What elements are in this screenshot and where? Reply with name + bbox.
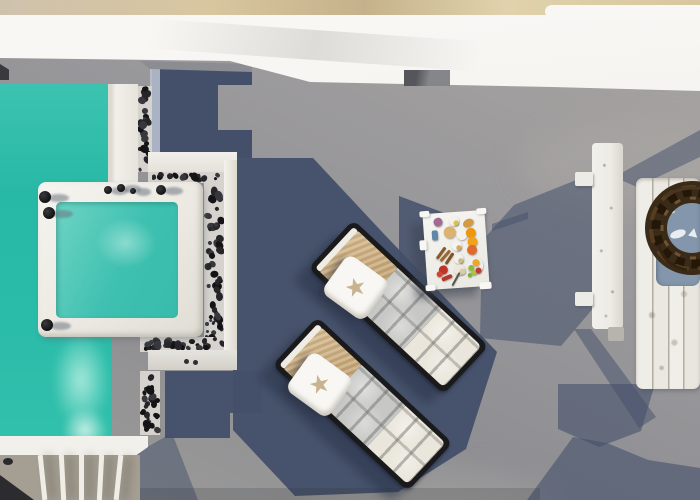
pebble <box>152 174 156 179</box>
table-corner-tab <box>479 282 491 290</box>
pebble <box>204 212 214 220</box>
food-item <box>467 245 478 256</box>
pool-right-coping <box>108 84 138 184</box>
food-item <box>459 268 465 274</box>
jacuzzi-water-highlight <box>96 218 156 268</box>
walkway-right-bar <box>224 160 237 362</box>
food-item <box>475 267 481 273</box>
pebble-border-lower <box>140 371 160 435</box>
white-bench <box>592 143 623 329</box>
ledge-drain-dot <box>184 359 189 364</box>
pebble <box>207 227 213 233</box>
food-item <box>433 217 443 227</box>
twig-wreath <box>635 166 700 296</box>
stairs-drain <box>3 458 13 465</box>
jacuzzi-knob <box>104 186 112 194</box>
step-riser <box>79 455 84 500</box>
pebble <box>147 373 156 382</box>
pebble <box>189 339 196 344</box>
knob-shadow <box>136 188 151 196</box>
bench-support <box>575 172 593 186</box>
pebble <box>146 416 150 421</box>
knob-shadow <box>52 210 73 218</box>
food-item <box>443 226 456 239</box>
knob-shadow <box>48 194 69 202</box>
starfish-icon <box>306 371 334 399</box>
jacuzzi-knob <box>41 319 53 331</box>
pebble <box>207 283 211 287</box>
pebble <box>205 322 209 326</box>
bench-foot <box>608 327 624 341</box>
pebble <box>138 168 142 173</box>
pebble <box>212 337 217 342</box>
jacuzzi-knob <box>130 188 136 194</box>
parapet-left-nick <box>0 64 9 80</box>
table-corner-tab <box>425 285 435 292</box>
pebble <box>214 206 219 211</box>
food-item <box>468 273 472 277</box>
pebble <box>142 107 149 113</box>
knob-shadow <box>164 187 183 195</box>
table-corner-tab <box>476 208 486 215</box>
breakfast-table <box>422 210 489 290</box>
knob-shadow <box>50 322 71 330</box>
jacuzzi-knob <box>43 207 55 219</box>
food-item <box>441 274 453 282</box>
pebble <box>210 270 219 277</box>
pebble <box>217 323 223 330</box>
table-side-tab <box>419 240 427 250</box>
pool-terrace-photo <box>0 0 700 500</box>
upper-roof-white-band <box>545 5 700 18</box>
pebble <box>153 425 162 433</box>
food-item <box>458 258 463 263</box>
jacuzzi-knob <box>117 184 125 192</box>
food-item <box>456 245 461 250</box>
jacuzzi-knob <box>156 185 166 195</box>
pebble <box>208 253 216 261</box>
parapet-notch <box>404 70 450 86</box>
pebble-border-right <box>204 183 224 349</box>
food-item <box>432 230 439 240</box>
table-corner-tab <box>419 211 429 218</box>
starfish-icon <box>342 274 370 302</box>
pebble <box>207 240 213 246</box>
food-item <box>453 220 458 225</box>
pebble <box>151 401 157 408</box>
bench-support <box>575 292 593 306</box>
jacuzzi-knob <box>39 191 51 203</box>
pebble <box>206 330 209 333</box>
pebble <box>144 426 149 432</box>
bottom-edge-shading <box>140 488 540 500</box>
ledge-drain-dot <box>193 360 198 365</box>
